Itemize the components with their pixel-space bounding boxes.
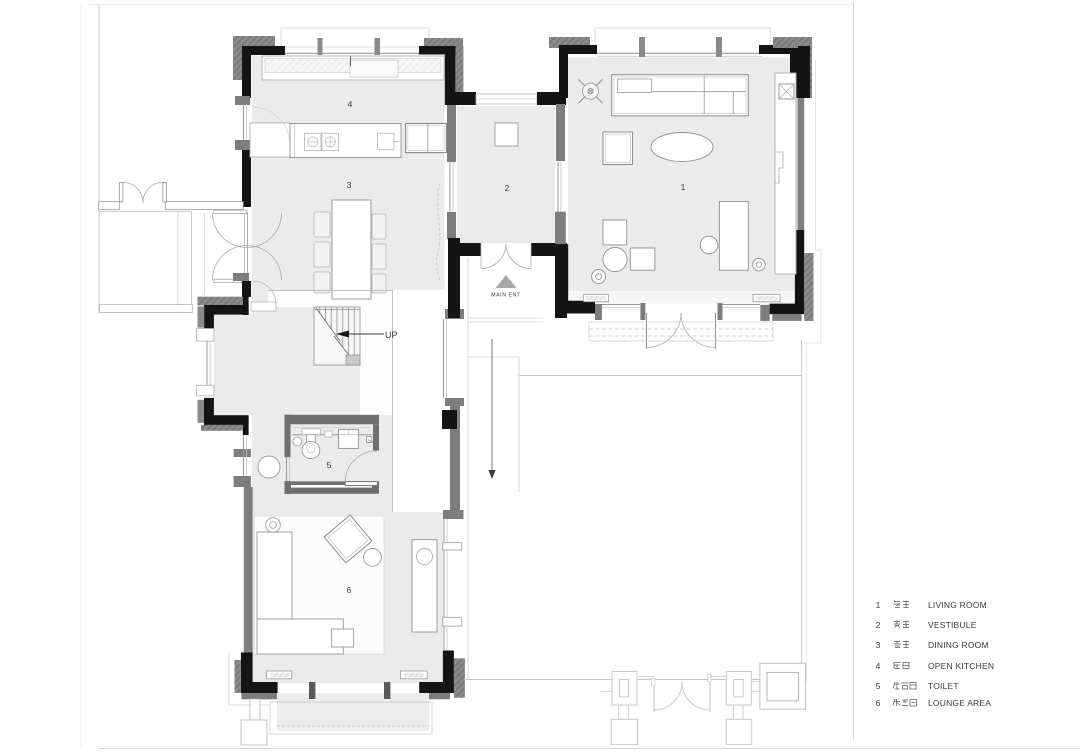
svg-text:VESTIBULE: VESTIBULE [928, 620, 977, 630]
svg-text:LOUNGE AREA: LOUNGE AREA [928, 698, 991, 708]
svg-text:5: 5 [327, 460, 332, 470]
svg-text:LIVING ROOM: LIVING ROOM [928, 600, 987, 610]
svg-text:DINING ROOM: DINING ROOM [928, 640, 989, 650]
svg-text:2: 2 [876, 620, 881, 630]
svg-text:1: 1 [681, 182, 686, 192]
svg-text:UP: UP [385, 330, 398, 340]
svg-text:6: 6 [876, 698, 881, 708]
svg-text:6: 6 [347, 585, 352, 595]
svg-text:OPEN KITCHEN: OPEN KITCHEN [928, 661, 994, 671]
svg-text:MAIN ENT: MAIN ENT [491, 293, 521, 299]
svg-text:1: 1 [876, 600, 881, 610]
svg-text:2: 2 [505, 183, 510, 193]
svg-text:4: 4 [876, 661, 881, 671]
svg-text:5: 5 [876, 681, 881, 691]
svg-text:TOILET: TOILET [928, 681, 959, 691]
svg-text:3: 3 [347, 180, 352, 190]
svg-text:4: 4 [348, 99, 353, 109]
svg-text:3: 3 [876, 640, 881, 650]
